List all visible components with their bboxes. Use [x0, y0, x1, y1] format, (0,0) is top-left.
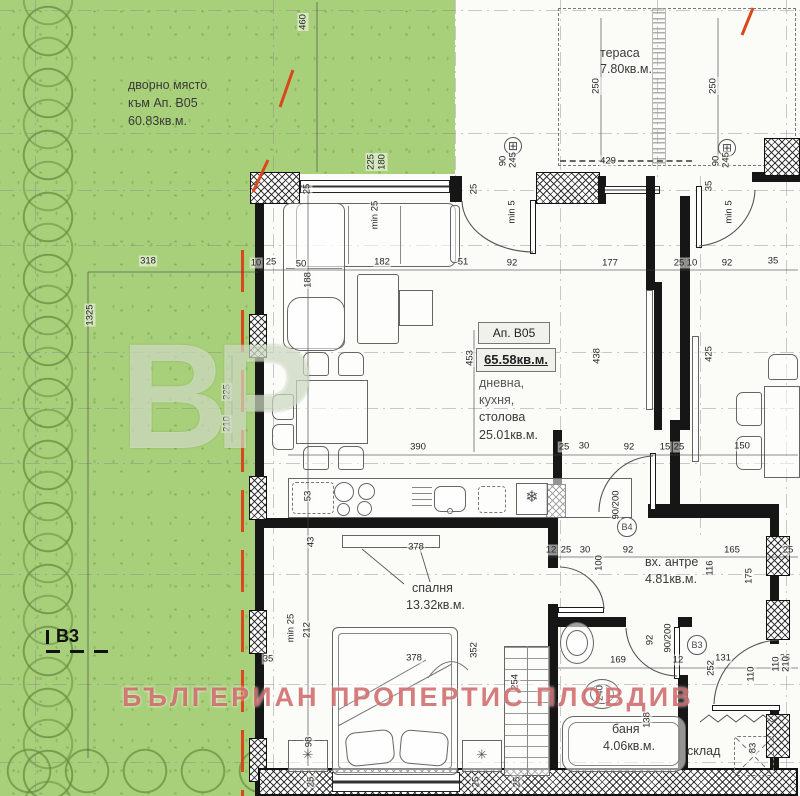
dimension-label: 90/200: [611, 489, 622, 520]
dimension-label: 429: [599, 156, 617, 167]
dimension-label: 390: [409, 442, 427, 453]
dimension-label: 35: [704, 180, 715, 193]
dimension-label: 210: [781, 655, 792, 673]
dimension-label: 25: [306, 776, 317, 789]
dimension-label: 53: [303, 490, 314, 503]
dimension-label: 25: [469, 183, 480, 196]
dimension-label: 180: [377, 153, 388, 171]
dimension-label: 150: [733, 441, 751, 452]
dimension-label: 92: [506, 258, 519, 269]
dimension-label: 25: [560, 545, 573, 556]
dimension-label: 182: [373, 257, 391, 268]
dimension-label: 245: [721, 151, 732, 169]
dimension-label: 225: [366, 153, 377, 171]
dimension-label: 453: [465, 349, 476, 367]
dimension-label: 10: [686, 258, 699, 269]
dimension-label: 175: [744, 567, 755, 585]
dimension-label: min 5: [724, 199, 735, 224]
dimension-label: 250: [591, 77, 602, 95]
dimension-label: 90/200: [663, 622, 674, 653]
dimension-label: 110: [746, 665, 757, 682]
dimension-label: 169: [609, 655, 627, 666]
dimension-label: 425: [704, 345, 715, 363]
dimension-label: 12: [672, 655, 685, 666]
dimension-label: 318: [139, 256, 157, 267]
dimension-label: 25: [302, 183, 313, 196]
dimension-label: 100: [594, 554, 605, 572]
dimension-label: 35: [767, 256, 780, 267]
dimension-label: 83: [748, 742, 759, 755]
dimension-label: 51: [457, 257, 470, 268]
dimension-label: 131: [714, 653, 732, 664]
dimension-label: 177: [601, 258, 619, 269]
dimension-label: 25: [673, 258, 686, 269]
dimension-label: 92: [645, 634, 656, 647]
dimension-label: 35: [262, 654, 275, 665]
dimension-label: 245: [508, 151, 519, 169]
dimension-label: 352: [469, 641, 480, 659]
dimension-label: 116: [705, 559, 716, 576]
bp-logo-watermark: BP: [120, 310, 300, 483]
dimension-label: min 25: [370, 200, 381, 231]
dimension-label: 25: [265, 257, 278, 268]
dimension-label: 212: [302, 621, 313, 639]
dimension-label: 188: [303, 271, 314, 289]
dimension-label: 15: [659, 442, 672, 453]
dimension-label: 30: [578, 441, 591, 452]
watermark-text: БЪЛГЕРИАН ПРОПЕРТИС ПЛОВДИВ: [122, 682, 694, 713]
dimension-label: 25: [673, 442, 686, 453]
dimension-label: 98: [304, 736, 315, 749]
dimension-label: 378: [407, 542, 425, 553]
dimension-label: 25: [471, 776, 482, 789]
dimension-label: 12: [545, 545, 558, 556]
dimension-label: 25: [782, 545, 795, 556]
dimension-label: 250: [708, 77, 719, 95]
dimension-label: 92: [721, 258, 734, 269]
dimension-label: min 5: [507, 199, 518, 224]
dimension-label: 25: [512, 776, 523, 789]
dimension-label: 165: [723, 545, 741, 556]
floor-plan: BP дворно място към Ап. B05 60.83кв.м. B…: [0, 0, 800, 796]
dimension-label: 438: [592, 347, 603, 365]
dimension-label: 92: [623, 442, 636, 453]
dimension-label: 10: [250, 258, 263, 269]
dimension-label: 460: [298, 13, 309, 31]
dimension-label: 50: [295, 259, 308, 270]
dimension-label: 1325: [85, 303, 96, 326]
dimension-label: 252: [706, 659, 717, 677]
dimension-label: 138: [642, 711, 653, 729]
dimension-label: 25: [558, 442, 571, 453]
dimension-label: 92: [622, 545, 635, 556]
dimension-label: 378: [405, 653, 423, 664]
dimension-label: 43: [306, 536, 317, 549]
dimension-label: min 25: [286, 613, 297, 644]
dimension-label: 30: [579, 545, 592, 556]
